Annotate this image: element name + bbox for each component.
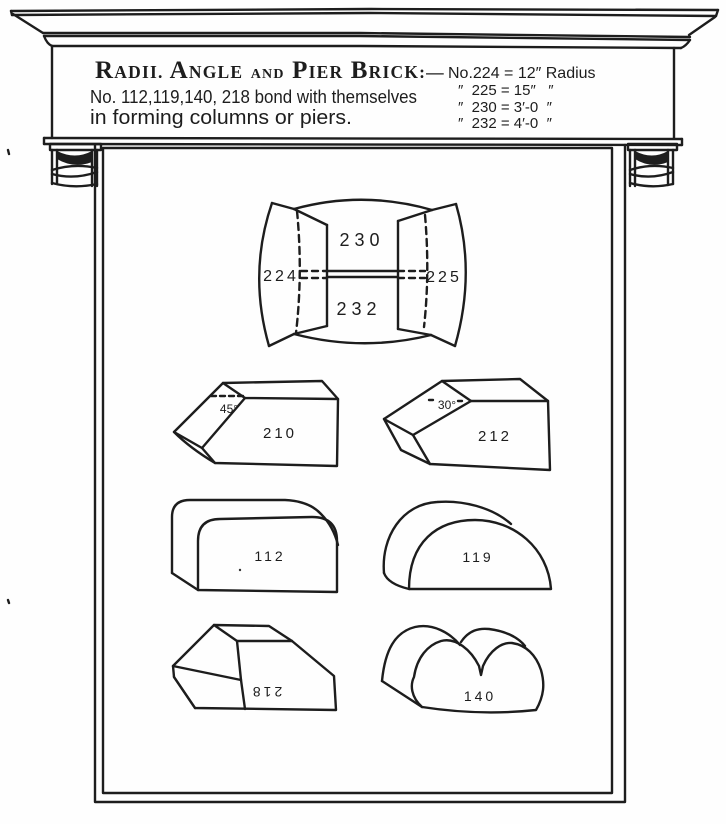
svg-text:No. 112,119,140, 218 bond with: No. 112,119,140, 218 bond with themselve… — [90, 86, 417, 107]
svg-text:140: 140 — [464, 688, 496, 704]
svg-text:119: 119 — [462, 549, 493, 565]
svg-text:″ 232 = 4′-0 ″: ″ 232 = 4′-0 ″ — [458, 115, 553, 132]
svg-text:in forming columns or piers.: in forming columns or piers. — [90, 106, 352, 129]
svg-text:″ 225 = 15″ ″: ″ 225 = 15″ ″ — [458, 82, 554, 99]
svg-text:218: 218 — [250, 684, 282, 700]
svg-text:232: 232 — [336, 299, 381, 319]
svg-text:112: 112 — [254, 548, 285, 564]
svg-text:224: 224 — [263, 268, 299, 285]
svg-text:225: 225 — [426, 269, 462, 286]
svg-text:230: 230 — [339, 230, 384, 250]
svg-text:210: 210 — [263, 425, 297, 442]
svg-text:212: 212 — [478, 428, 512, 445]
svg-text:No.224 = 12″ Radius: No.224 = 12″ Radius — [448, 65, 596, 82]
svg-text:″ 230 = 3′-0 ″: ″ 230 = 3′-0 ″ — [458, 99, 553, 116]
svg-text:30°: 30° — [438, 398, 456, 412]
svg-text:RADII. ANGLE AND PIER BRICK:—: RADII. ANGLE AND PIER BRICK:— — [95, 57, 445, 84]
svg-text:45°: 45° — [220, 402, 238, 416]
